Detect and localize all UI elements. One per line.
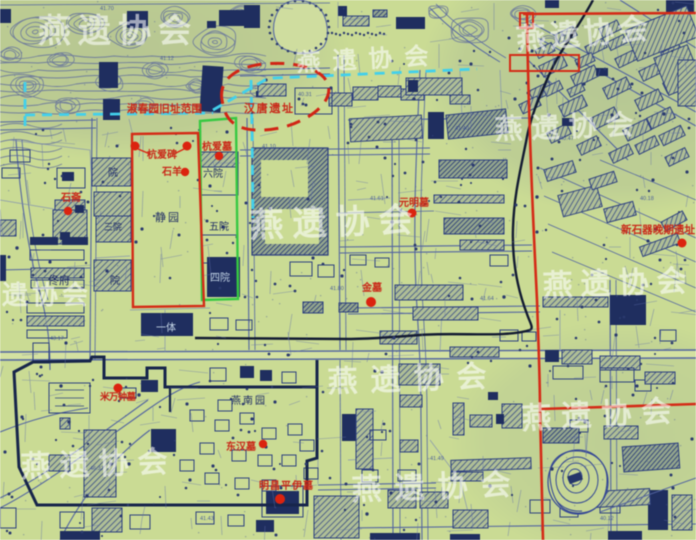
svg-text:40.12: 40.12 [600,516,614,522]
svg-text:燕遗协会: 燕遗协会 [20,446,177,484]
svg-text:燕遗协会: 燕遗协会 [249,201,422,245]
svg-text:燕遗协会: 燕遗协会 [327,360,500,399]
svg-text:新石器晚期遗址: 新石器晚期遗址 [621,223,696,236]
svg-text:院: 院 [108,166,118,179]
svg-text:燕遗协会: 燕遗协会 [494,109,643,145]
svg-text:41.64: 41.64 [480,296,494,302]
svg-text:41.49: 41.49 [430,456,444,462]
svg-text:杭爱碑: 杭爱碑 [147,148,177,161]
svg-text:六院: 六院 [203,167,223,180]
svg-text:41.10: 41.10 [262,144,276,150]
svg-text:杭爱墓: 杭爱墓 [202,140,233,153]
svg-text:41.80: 41.80 [330,286,344,292]
svg-text:淑春园旧址范围: 淑春园旧址范围 [127,102,202,115]
svg-text:41.43: 41.43 [200,516,214,522]
svg-text:燕遗协会: 燕遗协会 [351,468,524,507]
svg-text:金墓: 金墓 [361,281,383,294]
svg-text:一体: 一体 [156,322,176,334]
svg-text:41.40: 41.40 [455,126,469,132]
svg-text:汉唐遗址: 汉唐遗址 [244,101,293,115]
svg-text:41.12: 41.12 [160,56,174,62]
svg-text:院: 院 [110,274,120,287]
svg-text:三院: 三院 [104,221,122,232]
svg-text:燕南园: 燕南园 [231,394,267,407]
svg-text:明昌平伊墓: 明昌平伊墓 [259,479,314,492]
svg-text:石羊: 石羊 [161,165,182,178]
svg-text:五院: 五院 [209,220,229,233]
svg-text:燕遗协会: 燕遗协会 [38,12,198,49]
svg-text:41.61: 41.61 [370,196,384,202]
svg-text:燕遗协会: 燕遗协会 [0,280,92,310]
svg-text:四院: 四院 [210,271,230,284]
svg-text:43.17: 43.17 [50,336,64,342]
svg-text:40.18: 40.18 [640,196,654,202]
svg-text:米万钟墓: 米万钟墓 [99,391,136,403]
svg-text:燕遗协会: 燕遗协会 [542,265,695,303]
svg-text:东汉墓: 东汉墓 [226,440,257,453]
svg-text:石斋: 石斋 [60,191,82,204]
svg-text:40.31: 40.31 [298,92,312,98]
svg-text:静园: 静园 [155,210,181,224]
